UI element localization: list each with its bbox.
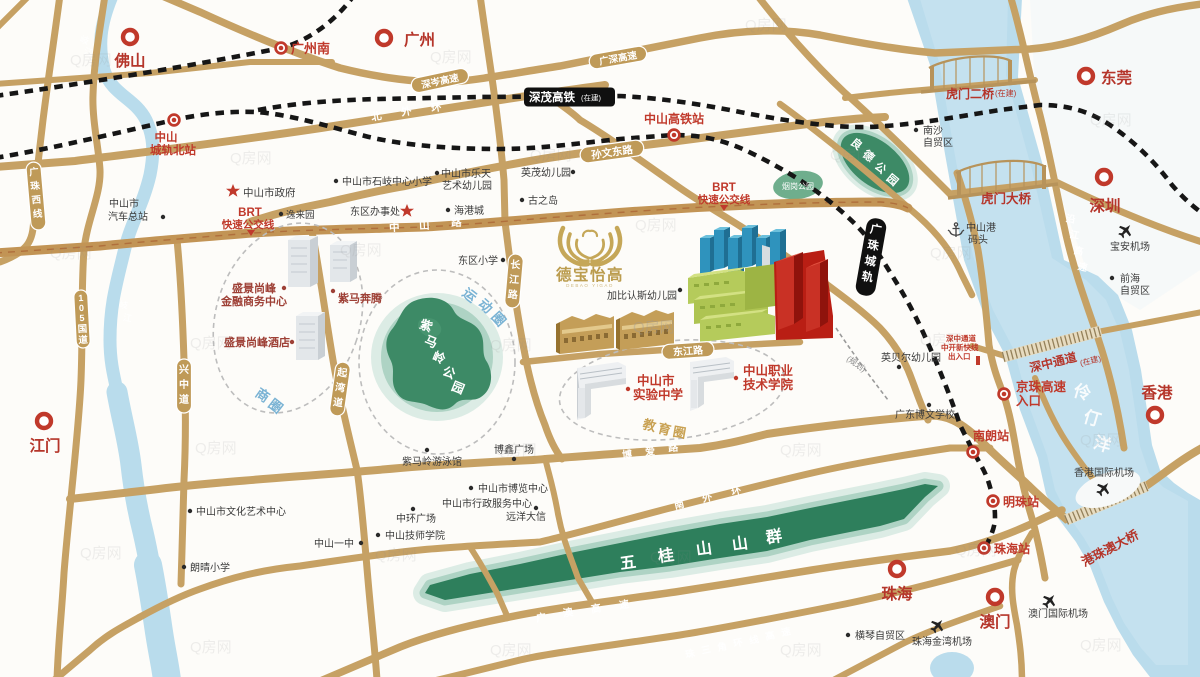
svg-text:Q房网: Q房网 bbox=[1080, 637, 1122, 654]
svg-text:金融商务中心: 金融商务中心 bbox=[220, 294, 287, 308]
svg-text:朗晴小学: 朗晴小学 bbox=[190, 561, 230, 574]
svg-text:快速公交线: 快速公交线 bbox=[697, 193, 751, 206]
svg-text:佛山: 佛山 bbox=[113, 51, 145, 70]
svg-text:Q房网: Q房网 bbox=[195, 440, 237, 457]
svg-text:山: 山 bbox=[731, 534, 749, 554]
svg-text:虎门二桥: 虎门二桥 bbox=[946, 86, 995, 101]
svg-text:出入口: 出入口 bbox=[948, 351, 971, 361]
svg-text:艺术幼儿园: 艺术幼儿园 bbox=[442, 179, 492, 192]
svg-text:中山港: 中山港 bbox=[966, 221, 996, 234]
svg-text:中: 中 bbox=[389, 221, 400, 235]
svg-text:圈: 圈 bbox=[672, 424, 687, 441]
svg-text:国: 国 bbox=[78, 324, 88, 335]
svg-text:Q房网: Q房网 bbox=[190, 335, 232, 352]
svg-text:快速公交线: 快速公交线 bbox=[221, 218, 275, 231]
svg-text:英茂幼儿园: 英茂幼儿园 bbox=[521, 166, 571, 179]
svg-text:入口: 入口 bbox=[1016, 394, 1041, 408]
svg-text:南朗站: 南朗站 bbox=[973, 428, 1009, 443]
svg-text:山: 山 bbox=[695, 539, 713, 559]
svg-text:中山技师学院: 中山技师学院 bbox=[385, 529, 445, 542]
svg-text:DEBAO YIGAO: DEBAO YIGAO bbox=[566, 283, 614, 288]
svg-text:中山市: 中山市 bbox=[109, 197, 139, 210]
svg-text:京珠高速: 京珠高速 bbox=[1016, 379, 1067, 394]
svg-text:路: 路 bbox=[451, 216, 463, 230]
svg-text:加比认斯幼儿园: 加比认斯幼儿园 bbox=[607, 289, 677, 302]
svg-text:五: 五 bbox=[619, 554, 637, 573]
svg-text:西: 西 bbox=[31, 195, 42, 207]
svg-text:紫马奔腾: 紫马奔腾 bbox=[338, 291, 383, 305]
svg-text:烟岗公园: 烟岗公园 bbox=[782, 182, 814, 191]
svg-text:Q房网: Q房网 bbox=[80, 545, 122, 562]
svg-text:Q房网: Q房网 bbox=[70, 52, 112, 69]
svg-text:德宝怡高: 德宝怡高 bbox=[556, 265, 624, 284]
svg-text:线: 线 bbox=[32, 207, 43, 220]
svg-text:道: 道 bbox=[78, 334, 89, 347]
svg-text:南沙: 南沙 bbox=[923, 124, 943, 137]
svg-text:Q房网: Q房网 bbox=[230, 150, 272, 167]
svg-text:实验中学: 实验中学 bbox=[633, 387, 684, 402]
svg-text:Q房网: Q房网 bbox=[1090, 112, 1132, 129]
svg-text:Q房网: Q房网 bbox=[635, 217, 677, 234]
svg-text:澳门国际机场: 澳门国际机场 bbox=[1028, 607, 1088, 620]
svg-text:江: 江 bbox=[509, 273, 520, 287]
svg-text:Q房网: Q房网 bbox=[490, 337, 532, 354]
svg-text:中山市行政服务中心: 中山市行政服务中心 bbox=[442, 497, 532, 510]
svg-text:逸来园: 逸来园 bbox=[286, 210, 315, 221]
svg-text:Q房网: Q房网 bbox=[430, 49, 472, 66]
svg-text:(在建): (在建) bbox=[995, 88, 1017, 98]
svg-text:紫马岭游泳馆: 紫马岭游泳馆 bbox=[402, 455, 462, 468]
svg-text:香港: 香港 bbox=[1141, 383, 1173, 402]
svg-text:BRT: BRT bbox=[238, 207, 262, 219]
svg-text:爱: 爱 bbox=[644, 445, 655, 459]
svg-text:前海: 前海 bbox=[1120, 272, 1140, 285]
svg-text:Q房网: Q房网 bbox=[830, 147, 872, 164]
svg-text:虎门大桥: 虎门大桥 bbox=[981, 191, 1032, 206]
svg-text:中山市: 中山市 bbox=[637, 373, 675, 388]
svg-text:中山一中: 中山一中 bbox=[314, 537, 354, 550]
svg-text:博: 博 bbox=[622, 448, 633, 462]
svg-text:Q房网: Q房网 bbox=[780, 642, 822, 659]
svg-text:BRT: BRT bbox=[712, 182, 736, 194]
svg-text:兴: 兴 bbox=[179, 363, 189, 376]
svg-text:中: 中 bbox=[179, 378, 189, 391]
svg-text:中环广场: 中环广场 bbox=[396, 512, 436, 525]
svg-text:中山市文化艺术中心: 中山市文化艺术中心 bbox=[196, 505, 286, 518]
svg-text:岐: 岐 bbox=[118, 298, 129, 310]
svg-text:Q房网: Q房网 bbox=[745, 17, 787, 34]
svg-text:中山市博览中心: 中山市博览中心 bbox=[478, 482, 548, 495]
svg-text:中山市乐天: 中山市乐天 bbox=[441, 167, 491, 180]
svg-text:Q房网: Q房网 bbox=[530, 147, 572, 164]
svg-text:东区小学: 东区小学 bbox=[458, 254, 498, 267]
svg-text:Q房网: Q房网 bbox=[1080, 432, 1122, 449]
svg-text:中山高铁站: 中山高铁站 bbox=[644, 111, 704, 126]
svg-text:香港国际机场: 香港国际机场 bbox=[1074, 466, 1134, 479]
svg-text:Q房网: Q房网 bbox=[650, 549, 692, 566]
svg-text:古之岛: 古之岛 bbox=[528, 194, 558, 207]
svg-text:海港城: 海港城 bbox=[454, 204, 484, 217]
svg-text:5: 5 bbox=[79, 313, 85, 323]
svg-text:远洋大信: 远洋大信 bbox=[506, 510, 546, 523]
svg-text:Q房网: Q房网 bbox=[920, 332, 962, 349]
svg-text:珠海金湾机场: 珠海金湾机场 bbox=[912, 635, 972, 648]
svg-text:山: 山 bbox=[419, 219, 430, 233]
svg-text:中山市石岐中心小学: 中山市石岐中心小学 bbox=[342, 175, 432, 188]
svg-text:自贸区: 自贸区 bbox=[923, 136, 953, 149]
svg-text:盛景尚峰酒店: 盛景尚峰酒店 bbox=[224, 335, 290, 349]
svg-text:深茂高铁: 深茂高铁 bbox=[529, 90, 575, 104]
svg-text:珠: 珠 bbox=[30, 180, 41, 193]
svg-text:群: 群 bbox=[765, 526, 784, 547]
svg-text:Q房网: Q房网 bbox=[340, 242, 382, 259]
svg-text:道: 道 bbox=[179, 393, 189, 406]
svg-text:0: 0 bbox=[79, 303, 85, 313]
svg-text:江门: 江门 bbox=[29, 436, 60, 455]
svg-text:江: 江 bbox=[122, 312, 133, 323]
svg-text:广州: 广州 bbox=[404, 30, 435, 49]
svg-text:Q房网: Q房网 bbox=[633, 319, 675, 336]
svg-text:城轨北站: 城轨北站 bbox=[150, 143, 196, 157]
svg-text:东区办事处: 东区办事处 bbox=[350, 205, 400, 218]
svg-text:广东博文学校: 广东博文学校 bbox=[895, 408, 955, 421]
svg-text:Q房网: Q房网 bbox=[930, 245, 972, 262]
svg-text:东莞: 东莞 bbox=[1101, 68, 1133, 87]
svg-text:宝安机场: 宝安机场 bbox=[1110, 240, 1150, 253]
svg-text:Q房网: Q房网 bbox=[490, 642, 532, 659]
svg-text:Q房网: Q房网 bbox=[190, 639, 232, 656]
svg-text:中山市政府: 中山市政府 bbox=[243, 186, 296, 199]
svg-text:澳门: 澳门 bbox=[979, 612, 1010, 631]
svg-text:英贝尔幼儿园: 英贝尔幼儿园 bbox=[881, 351, 941, 364]
svg-text:中山职业: 中山职业 bbox=[743, 363, 794, 378]
svg-text:中山: 中山 bbox=[155, 130, 178, 144]
svg-text:深圳: 深圳 bbox=[1089, 197, 1120, 215]
svg-text:技术学院: 技术学院 bbox=[743, 377, 794, 392]
svg-text:自贸区: 自贸区 bbox=[1120, 284, 1150, 297]
svg-text:Q房网: Q房网 bbox=[50, 245, 92, 262]
svg-text:盛景尚峰: 盛景尚峰 bbox=[232, 281, 277, 295]
svg-text:汽车总站: 汽车总站 bbox=[108, 210, 148, 223]
svg-text:Q房网: Q房网 bbox=[375, 547, 417, 564]
svg-text:1: 1 bbox=[78, 293, 84, 303]
svg-text:珠海: 珠海 bbox=[881, 584, 913, 603]
svg-text:明珠站: 明珠站 bbox=[1003, 494, 1039, 509]
svg-text:(在建): (在建) bbox=[581, 93, 601, 103]
svg-text:Q房网: Q房网 bbox=[780, 442, 822, 459]
svg-text:广州南: 广州南 bbox=[291, 41, 330, 56]
svg-text:Q房网: Q房网 bbox=[495, 442, 537, 459]
svg-text:横琴自贸区: 横琴自贸区 bbox=[855, 629, 905, 642]
svg-text:珠海站: 珠海站 bbox=[994, 541, 1030, 556]
svg-text:广: 广 bbox=[29, 166, 40, 179]
svg-text:Q房网: Q房网 bbox=[955, 542, 997, 559]
